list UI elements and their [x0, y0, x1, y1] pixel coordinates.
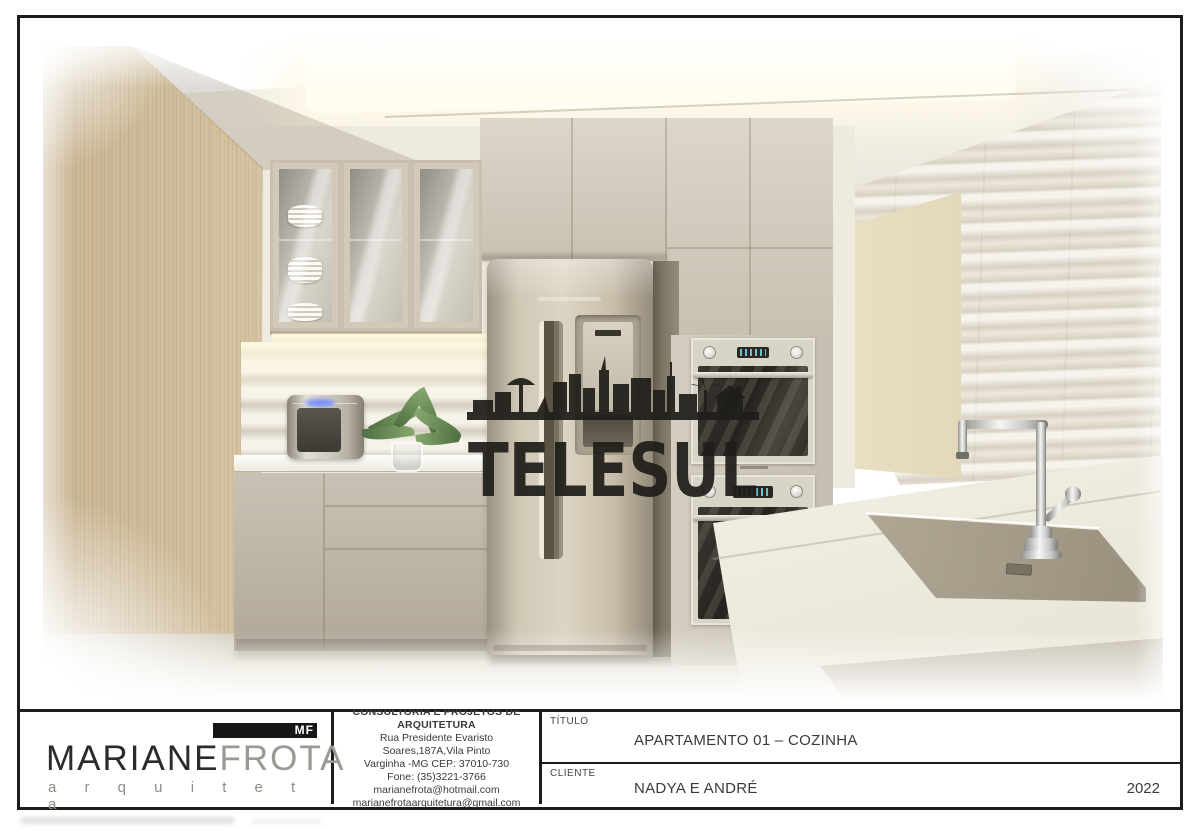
dispenser-display [595, 330, 621, 336]
glass-front-cabinet [270, 160, 482, 335]
scan-smudge [252, 819, 322, 824]
presentation-sheet: TELESUL MF MARIANEFROTA a r q u i t e t … [17, 15, 1183, 810]
year-value: 2022 [1127, 780, 1160, 797]
fridge-brand-mark [537, 297, 601, 301]
plate-stack [288, 205, 322, 227]
glass-cabinet-door [273, 163, 338, 328]
logo-monogram: MF [295, 723, 314, 737]
client-value: NADYA E ANDRÉ [634, 780, 758, 797]
upper-cabinet-over-fridge [480, 118, 667, 261]
appliance-window [297, 408, 341, 452]
fridge-floor-shadow [490, 656, 675, 664]
client-label: CLIENTE [550, 768, 596, 779]
watermark-text: TELESUL [468, 428, 758, 502]
architect-first-name: MARIANE [46, 739, 219, 778]
office-line: marianefrotaarquitetura@gmail.com [353, 797, 521, 810]
title-row: TÍTULO APARTAMENTO 01 – COZINHA [542, 712, 1180, 762]
title-block: MF MARIANEFROTA a r q u i t e t a CONSUL… [20, 709, 1180, 804]
glass-cabinet-door [414, 163, 479, 328]
office-line: CONSULTORIA E PROJETOS DE ARQUITETURA [338, 706, 535, 732]
architect-logo-cell: MF MARIANEFROTA a r q u i t e t a [20, 712, 331, 804]
telesul-watermark: TELESUL [465, 354, 761, 502]
office-line: Rua Presidente Evaristo Soares,187A,Vila… [338, 732, 535, 758]
cabinet-seam [323, 473, 325, 649]
cabinet-shelf [279, 239, 332, 241]
faucet [940, 400, 1090, 568]
oven-knob [790, 485, 803, 498]
plate-stack [288, 257, 322, 283]
microwave-knob [790, 346, 803, 359]
scan-smudge [20, 817, 235, 824]
title-value: APARTAMENTO 01 – COZINHA [634, 732, 858, 749]
appliance-blue-display [305, 399, 335, 407]
cabinet-seam [665, 118, 667, 276]
cabinet-seam [667, 247, 833, 249]
countertop-appliance [287, 395, 364, 459]
cabinet-seam [749, 118, 751, 338]
logo-monogram-bar: MF [213, 723, 317, 738]
office-line: Varginha -MG CEP: 37010-730 [364, 758, 509, 771]
office-info-cell: CONSULTORIA E PROJETOS DE ARQUITETURA Ru… [331, 712, 542, 804]
plate-stack [288, 303, 322, 321]
cabinet-shelf [420, 239, 473, 241]
architect-last-name: FROTA [219, 739, 345, 778]
plant-vase [391, 442, 423, 472]
title-label: TÍTULO [550, 716, 589, 727]
glass-cabinet-door [344, 163, 409, 328]
ceiling-light-panel [304, 27, 1015, 114]
office-line: Fone: (35)3221-3766 [387, 771, 486, 784]
cabinet-shelf [350, 239, 403, 241]
cabinet-seam [571, 118, 573, 261]
architect-name: MARIANEFROTA [46, 739, 345, 779]
architect-profession: a r q u i t e t a [48, 779, 331, 813]
office-line: marianefrota@hotmail.com [373, 784, 499, 797]
kitchen-render: TELESUL [20, 18, 1180, 709]
fridge-vent [493, 645, 647, 651]
fields-cell: TÍTULO APARTAMENTO 01 – COZINHA CLIENTE … [542, 712, 1180, 804]
client-row: CLIENTE NADYA E ANDRÉ 2022 [542, 762, 1180, 804]
